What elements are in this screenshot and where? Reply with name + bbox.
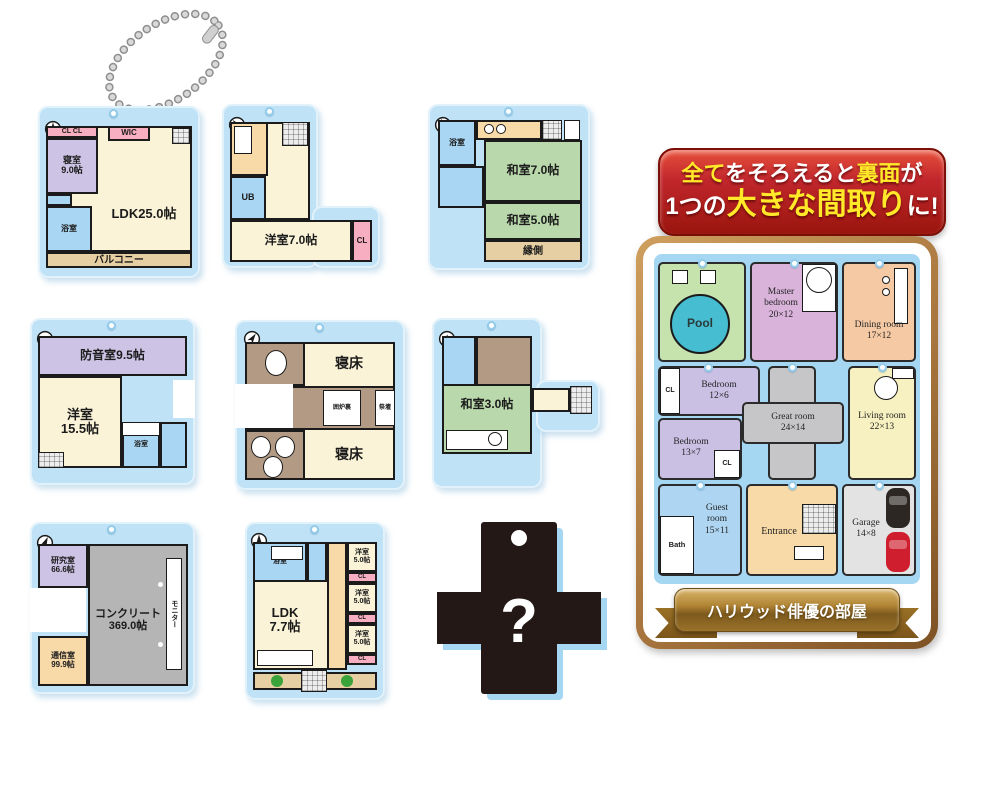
- keychain-hole: [704, 363, 713, 372]
- toilet: [46, 194, 72, 206]
- banner-text: が: [900, 161, 922, 186]
- caption-text: ハリウッド俳優の部屋: [707, 598, 867, 622]
- corridor: [327, 542, 347, 670]
- pool-chair: [700, 270, 716, 284]
- desk: [794, 546, 824, 560]
- entry-tiles: [38, 452, 64, 468]
- keychain-hole: [107, 321, 116, 330]
- entrance-label: Entrance: [750, 522, 808, 542]
- keychain-hole: [875, 481, 884, 490]
- keychain-ldk7: 浴室LDK 7.7帖洋室 5.0帖CL洋室 5.0帖CL洋室 5.0帖CL: [245, 522, 385, 700]
- car-windshield: [889, 540, 907, 549]
- guest-bath: Bath: [660, 516, 694, 574]
- banner-text: 全て: [682, 161, 726, 186]
- closet: CL: [347, 654, 377, 665]
- black-car: [886, 488, 910, 528]
- banner-text: をそろえると: [725, 161, 856, 186]
- closet: CL: [347, 613, 377, 624]
- western-room-5c: 洋室 5.0帖: [347, 624, 377, 654]
- sink: [496, 124, 506, 134]
- western-room-5b: 洋室 5.0帖: [347, 583, 377, 613]
- stool: [265, 350, 287, 376]
- closet: CL: [352, 220, 372, 262]
- great-room-label: Great room 24×14: [742, 404, 844, 442]
- ldk-label: LDK 7.7帖: [255, 600, 315, 640]
- keychain-hole: [109, 109, 118, 118]
- unit-bath: UB: [230, 176, 266, 220]
- comms-room: 通信室 99.9帖: [38, 636, 88, 686]
- notch: [173, 380, 195, 418]
- caption-plate: ハリウッド俳優の部屋: [674, 588, 900, 632]
- washitsu-3-label: 和室3.0帖: [444, 393, 530, 417]
- banner-line-1: 全てをそろえると裏面が: [682, 162, 923, 187]
- bath: 浴室: [438, 120, 476, 166]
- stool: [882, 288, 890, 296]
- closet: CL: [714, 450, 740, 478]
- bedroom-13x7-label: Bedroom 13×7: [662, 430, 720, 466]
- banner-text: に!: [907, 193, 939, 220]
- garage-label: Garage 14×8: [844, 516, 888, 542]
- concrete-label: コンクリート 369.0帖: [88, 600, 168, 640]
- closets: CL CL: [46, 126, 98, 138]
- closet: CL: [347, 572, 377, 583]
- keychain-soundproof: 防音室9.5帖洋室 15.5帖浴室: [30, 318, 195, 485]
- toilet: [307, 542, 327, 582]
- red-car: [886, 532, 910, 572]
- saidan: 祭壇: [375, 390, 395, 426]
- banner-text: 大きな間取り: [727, 188, 907, 221]
- hallway: [532, 388, 570, 412]
- dining-room-label: Dining room 17×12: [844, 316, 914, 346]
- toilet: [438, 166, 484, 208]
- toilet: [442, 336, 476, 386]
- monitor: モニター: [166, 558, 182, 670]
- shelf: [892, 368, 914, 379]
- dot: [158, 642, 163, 647]
- keychain-hole: [310, 525, 319, 534]
- assembled-floorplan: PoolMaster bedroom 20×12Dining room 17×1…: [654, 254, 920, 584]
- storage: [476, 336, 532, 386]
- sink: [488, 432, 502, 446]
- keychain-washitsu3: 和室3.0帖: [432, 318, 600, 488]
- entry-tiles: [172, 128, 190, 144]
- keychain-hole: [696, 481, 705, 490]
- keychain-irori: 寝床囲炉裏祭壇寝床: [235, 320, 405, 490]
- pool: Pool: [670, 294, 730, 354]
- entry-tiles: [570, 386, 592, 414]
- dot: [158, 582, 163, 587]
- banner-text: 1つの: [665, 193, 726, 220]
- keychain-hole: [788, 363, 797, 372]
- keychain-ldk25: バルコニーCL CL寝室 9.0帖WIC浴室LDK25.0帖: [38, 106, 200, 278]
- engawa: 縁側: [484, 240, 582, 262]
- car-windshield: [889, 496, 907, 505]
- sink-unit: [234, 126, 252, 154]
- keychain-hole: [511, 530, 527, 546]
- keychain-hole: [698, 259, 707, 268]
- keychain-hole: [107, 525, 116, 534]
- entry-tiles: [301, 670, 327, 692]
- tree: [341, 675, 353, 687]
- bed-bottom: 寝床: [305, 440, 393, 470]
- living-room-label: Living room 22×13: [850, 406, 914, 438]
- pool-chair: [672, 270, 688, 284]
- keychain-hole: [315, 323, 324, 332]
- keychain-hole: [788, 481, 797, 490]
- sink: [484, 124, 494, 134]
- bedroom-9: 寝室 9.0帖: [46, 138, 98, 194]
- caption-ribbon: ハリウッド俳優の部屋: [643, 588, 931, 640]
- balcony: バルコニー: [46, 252, 192, 268]
- keychain-washitsu7-5: 浴室和室7.0帖和室5.0帖縁側: [428, 104, 590, 270]
- tree: [271, 675, 283, 687]
- lab: 研究室 66.6帖: [38, 544, 88, 588]
- tub: [271, 546, 303, 560]
- keychain-concrete: モニターコンクリート 369.0帖研究室 66.6帖通信室 99.9帖: [30, 522, 195, 694]
- bath: 浴室: [46, 206, 92, 252]
- table: [874, 376, 898, 400]
- big-floorplan-card: PoolMaster bedroom 20×12Dining room 17×1…: [643, 243, 931, 642]
- toilet: [160, 422, 187, 468]
- notch: [30, 588, 86, 632]
- washitsu-7: 和室7.0帖: [484, 140, 582, 202]
- keychain-mystery: ?: [437, 522, 607, 700]
- flyer-canvas: バルコニーCL CL寝室 9.0帖WIC浴室LDK25.0帖UB洋室7.0帖CL…: [0, 0, 1000, 800]
- keychain-hole: [487, 321, 496, 330]
- irori: 囲炉裏: [323, 390, 361, 426]
- banner-text: 裏面: [856, 161, 900, 186]
- western-room-7: 洋室7.0帖: [230, 220, 352, 262]
- wic: WIC: [108, 126, 150, 141]
- keychain-hole: [265, 107, 274, 116]
- soundproof-room: 防音室9.5帖: [38, 336, 187, 376]
- stool: [882, 276, 890, 284]
- keychain-hole: [878, 363, 887, 372]
- promo-banner: 全てをそろえると裏面が 1つの大きな間取りに!: [658, 148, 946, 236]
- stool: [251, 436, 271, 458]
- closet: CL: [660, 368, 680, 414]
- guest-room-label: Guest room 15×11: [694, 496, 740, 544]
- washitsu-5: 和室5.0帖: [484, 202, 582, 240]
- master-tub: [806, 267, 832, 293]
- bed-top: 寝床: [305, 350, 393, 378]
- kitchen-counter: [257, 650, 313, 666]
- entry-tiles: [282, 122, 308, 146]
- big-floorplan-frame: PoolMaster bedroom 20×12Dining room 17×1…: [636, 236, 938, 649]
- door: [564, 120, 580, 140]
- question-mark: ?: [481, 580, 557, 664]
- banner-line-2: 1つの大きな間取りに!: [665, 188, 938, 222]
- entry-tiles: [542, 120, 562, 140]
- keychain-yoshitsu7: UB洋室7.0帖CL: [222, 104, 380, 268]
- ldk-label: LDK25.0帖: [96, 201, 192, 227]
- keychain-hole: [790, 259, 799, 268]
- keychain-hole: [504, 107, 513, 116]
- western-room-5a: 洋室 5.0帖: [347, 542, 377, 572]
- keychain-hole: [875, 259, 884, 268]
- counter: [122, 422, 160, 436]
- notch: [235, 384, 293, 428]
- stool: [263, 456, 283, 478]
- stool: [275, 436, 295, 458]
